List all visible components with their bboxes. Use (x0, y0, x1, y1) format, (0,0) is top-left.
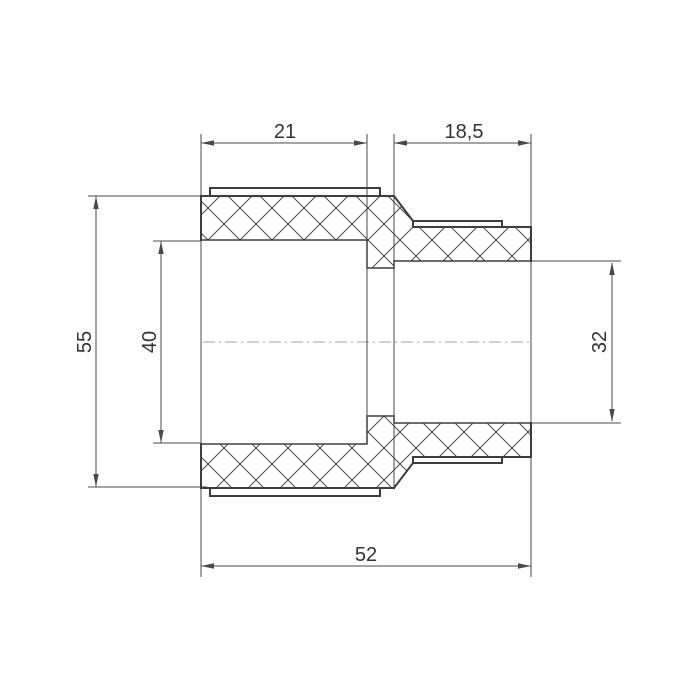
dimension-spigot-length: 18,5 (394, 121, 531, 146)
dim-label-left-bore: 40 (139, 331, 161, 353)
dim-label-socket-length: 21 (274, 121, 296, 143)
arrowhead-18-5-left (394, 140, 407, 145)
hatch-left-bottom-wall (201, 416, 394, 488)
arrowhead-52-left (201, 563, 214, 568)
dim-label-overall-length: 52 (355, 544, 377, 566)
arrowhead-18-5-right (518, 140, 531, 145)
dimension-right-bore: 32 (589, 262, 615, 422)
fitting-section-drawing: 21 18,5 55 40 32 52 (0, 0, 700, 700)
arrowhead-32-bottom (609, 409, 614, 422)
dimension-socket-length: 21 (201, 121, 367, 146)
hatch-right-bottom-wall (394, 423, 531, 487)
arrowhead-55-top (93, 196, 98, 209)
arrowhead-21-right (354, 140, 367, 145)
arrowhead-40-top (158, 241, 163, 254)
hatch-left-top-wall (201, 196, 394, 268)
arrowhead-55-bottom (93, 474, 98, 487)
dimension-outer-diameter: 55 (74, 196, 99, 487)
arrowhead-52-right (518, 563, 531, 568)
technical-drawing-canvas: 21 18,5 55 40 32 52 (0, 0, 700, 700)
dim-label-right-bore: 32 (589, 331, 611, 353)
dimension-left-bore: 40 (139, 241, 164, 443)
arrowhead-32-top (609, 262, 614, 275)
arrowhead-40-bottom (158, 430, 163, 443)
dimension-overall-length: 52 (201, 544, 531, 569)
dim-label-outer-diameter: 55 (74, 331, 96, 353)
dim-label-spigot-length: 18,5 (445, 121, 484, 143)
hatch-right-top-wall (394, 197, 531, 261)
arrowhead-21-left (201, 140, 214, 145)
